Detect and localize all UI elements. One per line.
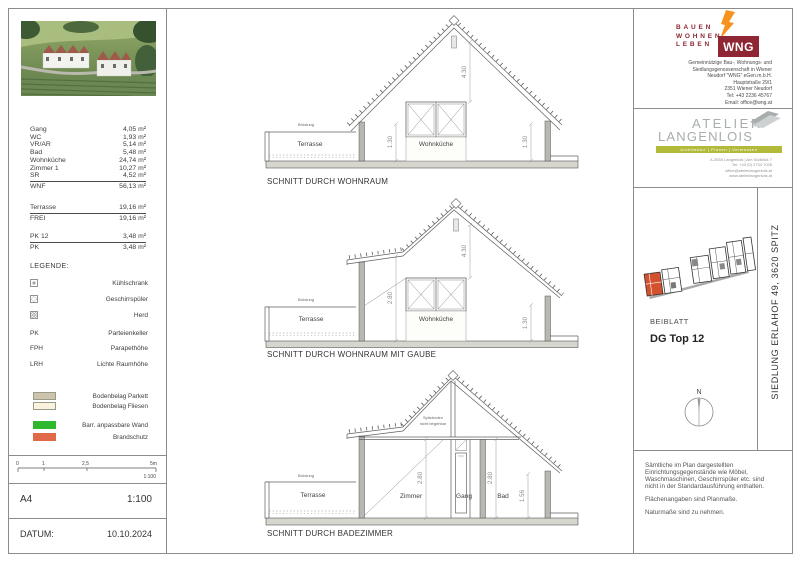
note-line: Naturmaße sind zu nehmen. xyxy=(645,509,785,516)
right-wall xyxy=(545,296,551,341)
atelier-website: www.atelierlangenlois.at xyxy=(650,173,772,178)
stove-icon xyxy=(30,311,38,319)
sum-rule xyxy=(30,242,146,243)
terrace-label: Terrasse xyxy=(298,141,323,148)
dormer-roof xyxy=(347,249,403,265)
dimension-right: 1.30 xyxy=(522,122,533,163)
wng-tagline-line: LEBEN xyxy=(676,41,722,50)
wng-phone: Tel: +43 2236 45767 xyxy=(650,93,772,100)
legend-item-label: Geschirrspüler xyxy=(106,296,148,303)
atelier-services-bar: Architektur | Planen | Vermessen xyxy=(656,146,782,153)
svg-text:1.30: 1.30 xyxy=(522,135,529,148)
table-row: SR4,52 m² xyxy=(30,172,146,180)
divider-right-column xyxy=(633,8,634,553)
terrace-label: Terrasse xyxy=(301,492,326,499)
left-wall xyxy=(359,436,365,518)
svg-text:4.30: 4.30 xyxy=(461,244,468,257)
north-label: N xyxy=(689,389,709,396)
svg-text:1.30: 1.30 xyxy=(522,316,529,329)
dimension-ridge: 4.30 xyxy=(461,223,472,280)
terrace-parapet xyxy=(265,482,269,518)
site-key-plan xyxy=(636,235,756,305)
barrier-free-swatch xyxy=(33,421,56,429)
section-caption: SCHNITT DURCH WOHNRAUM xyxy=(267,177,388,186)
date-row: DATUM: 10.10.2024 xyxy=(20,529,152,539)
dimension-left: 1.30 xyxy=(387,122,398,163)
attic-note: Spitzboden xyxy=(423,415,443,420)
parapet-label: Brüstung xyxy=(298,473,314,478)
swatch-label: Bodenbelag Parkett xyxy=(93,393,148,400)
note-line: nicht in der Standardausführung enthalte… xyxy=(645,483,785,490)
terrace-table: Terrasse19,16 m² FREI19,16 m² xyxy=(30,204,146,222)
legend-item-label: Kühlschrank xyxy=(112,280,148,287)
left-wall xyxy=(359,262,365,341)
table-row: Gang4,05 m² xyxy=(30,126,146,134)
fliesen-swatch xyxy=(33,402,56,410)
floor-slab xyxy=(266,518,578,525)
kitchen-window xyxy=(406,102,466,161)
fire-protection-swatch xyxy=(33,433,56,441)
legend-swatch-row: Barr. anpassbare Wand xyxy=(33,421,148,429)
bad-wall xyxy=(480,440,486,519)
section-drawing-wohnraum-gaube: Brüstung Terrasse Wohnküche 4.30 2.80 1.… xyxy=(253,193,591,355)
parkett-swatch xyxy=(33,392,56,400)
room-label: Gang xyxy=(456,493,472,500)
right-wall xyxy=(545,121,551,161)
wng-address-line: Siedlungsgenossenschaft in Wiener xyxy=(650,67,772,74)
legend-item-label: Herd xyxy=(134,312,148,319)
atelier-roof-icon xyxy=(748,108,782,128)
table-row: PK 123,48 m² xyxy=(30,233,146,241)
legend-abbr: PK xyxy=(30,330,39,337)
table-row: WC1,93 m² xyxy=(30,134,146,142)
atelier-address: A-3550 Langenlois | Am Südblick 7 Tel. +… xyxy=(650,157,772,179)
swatch-label: Bodenbelag Fliesen xyxy=(92,403,148,410)
general-notes: Sämtliche im Plan dargestellten Einricht… xyxy=(645,462,785,517)
divider-date xyxy=(8,518,167,519)
ridge-cap xyxy=(451,199,461,209)
date-value: 10.10.2024 xyxy=(107,529,152,539)
room-label: Wohnküche xyxy=(419,141,454,148)
section-caption: SCHNITT DURCH WOHNRAUM MIT GAUBE xyxy=(267,350,436,359)
legend-item: Herd xyxy=(30,311,148,319)
atelier-logo-line2: LANGENLOIS xyxy=(658,129,753,144)
scale-ratio-small: 1:100 xyxy=(120,474,156,480)
table-total-row: FREI19,16 m² xyxy=(30,215,146,223)
section-caption: SCHNITT DURCH BADEZIMMER xyxy=(267,529,393,538)
legend-swatch-row: Bodenbelag Fliesen xyxy=(33,402,148,410)
fridge-icon xyxy=(30,279,38,287)
swatch-label: Barr. anpassbare Wand xyxy=(82,422,148,429)
divider-format xyxy=(8,483,167,484)
dimension-left: 2.80 xyxy=(387,254,398,343)
wng-address-line: 2351 Wiener Neudorf xyxy=(650,86,772,93)
section-drawing-wohnraum: Brüstung Terrasse Wohnküche 4.30 1.30 1.… xyxy=(253,14,591,182)
legend-swatch-row: Bodenbelag Parkett xyxy=(33,392,148,400)
divider-atelier xyxy=(633,187,792,188)
room-label: Wohnküche xyxy=(419,316,454,323)
table-total-row: WNF56,13 m² xyxy=(30,183,146,191)
parapet-label: Brüstung xyxy=(298,122,314,127)
note-line: Einrichtungsgegenstände wie Möbel, xyxy=(645,469,785,476)
note-line: Waschmaschinen, Geschirrspüler etc. sind xyxy=(645,476,785,483)
divider-scalebar xyxy=(8,455,167,456)
date-label: DATUM: xyxy=(20,529,54,539)
note-line: Sämtliche im Plan dargestellten xyxy=(645,462,785,469)
sum-rule xyxy=(30,213,146,214)
sum-rule xyxy=(30,181,146,182)
format-row: A4 1:100 xyxy=(20,494,152,505)
dimension-left: 2.80 xyxy=(417,437,428,520)
floor-slab xyxy=(266,161,578,168)
dimension-mid: 2.80 xyxy=(487,437,498,520)
svg-text:2.80: 2.80 xyxy=(417,471,424,484)
ridge-cap xyxy=(449,16,459,26)
key-plan-unit xyxy=(662,267,682,293)
attic-note: nicht begehbar xyxy=(420,421,447,426)
legend-swatch-row: Brandschutz xyxy=(33,433,148,441)
section-drawing-badezimmer: Spitzboden nicht begehbar Brüstung Terra… xyxy=(253,370,591,534)
attic-ceiling xyxy=(359,381,521,440)
legend-item-label: Parteienkeller xyxy=(108,330,148,337)
legend-item-label: Parapethöhe xyxy=(111,345,148,352)
paper-format: A4 xyxy=(20,494,32,505)
left-wall xyxy=(359,122,365,161)
terrace-parapet xyxy=(265,132,269,161)
gang-door xyxy=(451,440,470,519)
dimension-right: 1.30 xyxy=(522,303,533,343)
wng-address: Gemeinnützige Bau-, Wohnungs- und Siedlu… xyxy=(650,60,772,106)
wng-logo: WNG xyxy=(718,36,759,57)
legend-title: LEGENDE: xyxy=(30,261,69,270)
swatch-label: Brandschutz xyxy=(113,434,148,441)
north-arrow-icon xyxy=(682,396,716,430)
legend-item-label: Lichte Raumhöhe xyxy=(97,361,148,368)
legend-item: Geschirrspüler xyxy=(30,295,148,303)
legend-item: FPH Parapethöhe xyxy=(30,345,148,352)
right-wall xyxy=(545,471,551,518)
site-photo xyxy=(21,21,156,96)
table-total-row: PK3,48 m² xyxy=(30,244,146,252)
room-area-table: Gang4,05 m² WC1,93 m² VR/AR5,14 m² Bad5,… xyxy=(30,126,146,191)
project-title-vertical: SIEDLUNG ERLAHOF 49, 3620 SPITZ xyxy=(770,182,780,442)
table-row: Bad5,48 m² xyxy=(30,149,146,157)
svg-text:2.80: 2.80 xyxy=(487,471,494,484)
kitchen-window xyxy=(406,278,466,341)
floor-slab xyxy=(266,341,578,348)
legend-item: LRH Lichte Raumhöhe xyxy=(30,361,148,368)
legend-abbr: LRH xyxy=(30,361,43,368)
table-row: VR/AR5,14 m² xyxy=(30,141,146,149)
room-label: Zimmer xyxy=(400,493,423,500)
houses-right-group xyxy=(97,51,131,76)
table-row: Wohnküche24,74 m² xyxy=(30,157,146,165)
plan-sheet: Gang4,05 m² WC1,93 m² VR/AR5,14 m² Bad5,… xyxy=(0,0,800,565)
scale-tick-label: 1 xyxy=(42,461,45,467)
divider-left-column xyxy=(166,8,167,553)
svg-text:4.30: 4.30 xyxy=(461,65,468,78)
dimension-ridge: 4.30 xyxy=(461,40,472,104)
note-line: Flächenangaben sind Planmaße. xyxy=(645,496,785,503)
wng-address-line: Gemeinnützige Bau-, Wohnungs- und xyxy=(650,60,772,67)
legend-item: PK Parteienkeller xyxy=(30,330,148,337)
scale-tick-label: 0 xyxy=(16,461,19,467)
legend-item: Kühlschrank xyxy=(30,279,148,287)
table-row: Zimmer 110,27 m² xyxy=(30,165,146,173)
divider-notes xyxy=(633,450,792,451)
table-row: Terrasse19,16 m² xyxy=(30,204,146,212)
parapet-label: Brüstung xyxy=(298,297,314,302)
legend-abbr: FPH xyxy=(30,345,43,352)
drawing-scale: 1:100 xyxy=(127,494,152,505)
scale-tick-label: 5m xyxy=(150,461,157,467)
terrace-parapet xyxy=(265,307,269,341)
svg-text:1.30: 1.30 xyxy=(387,135,394,148)
svg-text:2.80: 2.80 xyxy=(387,291,394,304)
room-label: Bad xyxy=(497,493,509,500)
svg-text:1.56: 1.56 xyxy=(519,489,526,502)
wng-email: Email: office@wng.at xyxy=(650,100,772,107)
scale-tick-label: 2,5 xyxy=(82,461,89,467)
wng-address-line: Hauptstraße 29/1 xyxy=(650,80,772,87)
dimension-right: 1.56 xyxy=(519,472,530,520)
wng-address-line: Neudorf "WNG" eGen.m.b.H. xyxy=(650,73,772,80)
dishwasher-icon xyxy=(30,295,38,303)
pk-table: PK 123,48 m² PK3,48 m² xyxy=(30,233,146,251)
terrace-label: Terrasse xyxy=(299,316,324,323)
